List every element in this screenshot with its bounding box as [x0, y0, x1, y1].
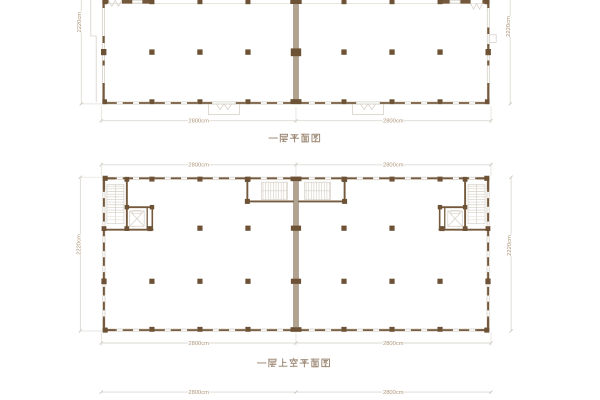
svg-text:2800cm: 2800cm — [188, 163, 209, 169]
svg-text:2800cm: 2800cm — [188, 119, 209, 125]
svg-text:2220cm: 2220cm — [506, 16, 512, 37]
svg-text:2800cm: 2800cm — [188, 341, 209, 347]
svg-text:2800cm: 2800cm — [383, 390, 404, 396]
svg-text:2800cm: 2800cm — [383, 341, 404, 347]
svg-text:2220cm: 2220cm — [77, 12, 83, 33]
svg-text:2800cm: 2800cm — [383, 163, 404, 169]
svg-text:2800cm: 2800cm — [383, 119, 404, 125]
svg-text:2220cm: 2220cm — [507, 235, 513, 256]
svg-text:2800cm: 2800cm — [188, 390, 209, 396]
svg-text:2220cm: 2220cm — [76, 234, 82, 255]
